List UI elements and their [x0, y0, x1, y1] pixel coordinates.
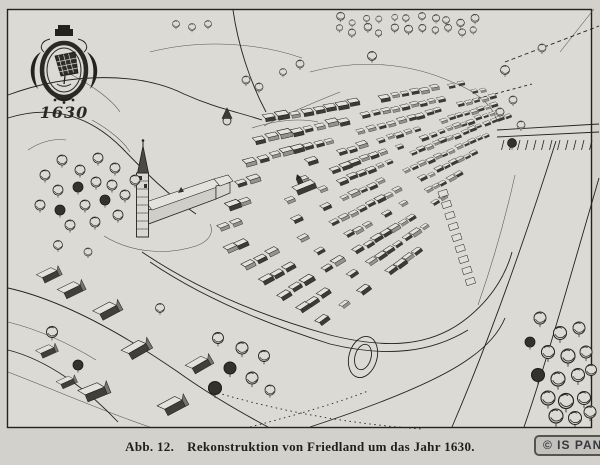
watermark-badge: © IS PAN	[534, 435, 600, 456]
cartouche-year: 1630	[40, 103, 89, 122]
town-illustration: 1630	[0, 0, 600, 465]
scanned-figure-page: 1630 Abb. 12.Rekonstruktion von Friedlan…	[0, 0, 600, 465]
figure-caption: Abb. 12.Rekonstruktion von Friedland um …	[0, 439, 600, 455]
cartouche-crest	[55, 29, 73, 36]
figure-number: Abb. 12.	[125, 439, 174, 454]
figure-caption-text: Rekonstruktion von Friedland um das Jahr…	[187, 439, 475, 454]
